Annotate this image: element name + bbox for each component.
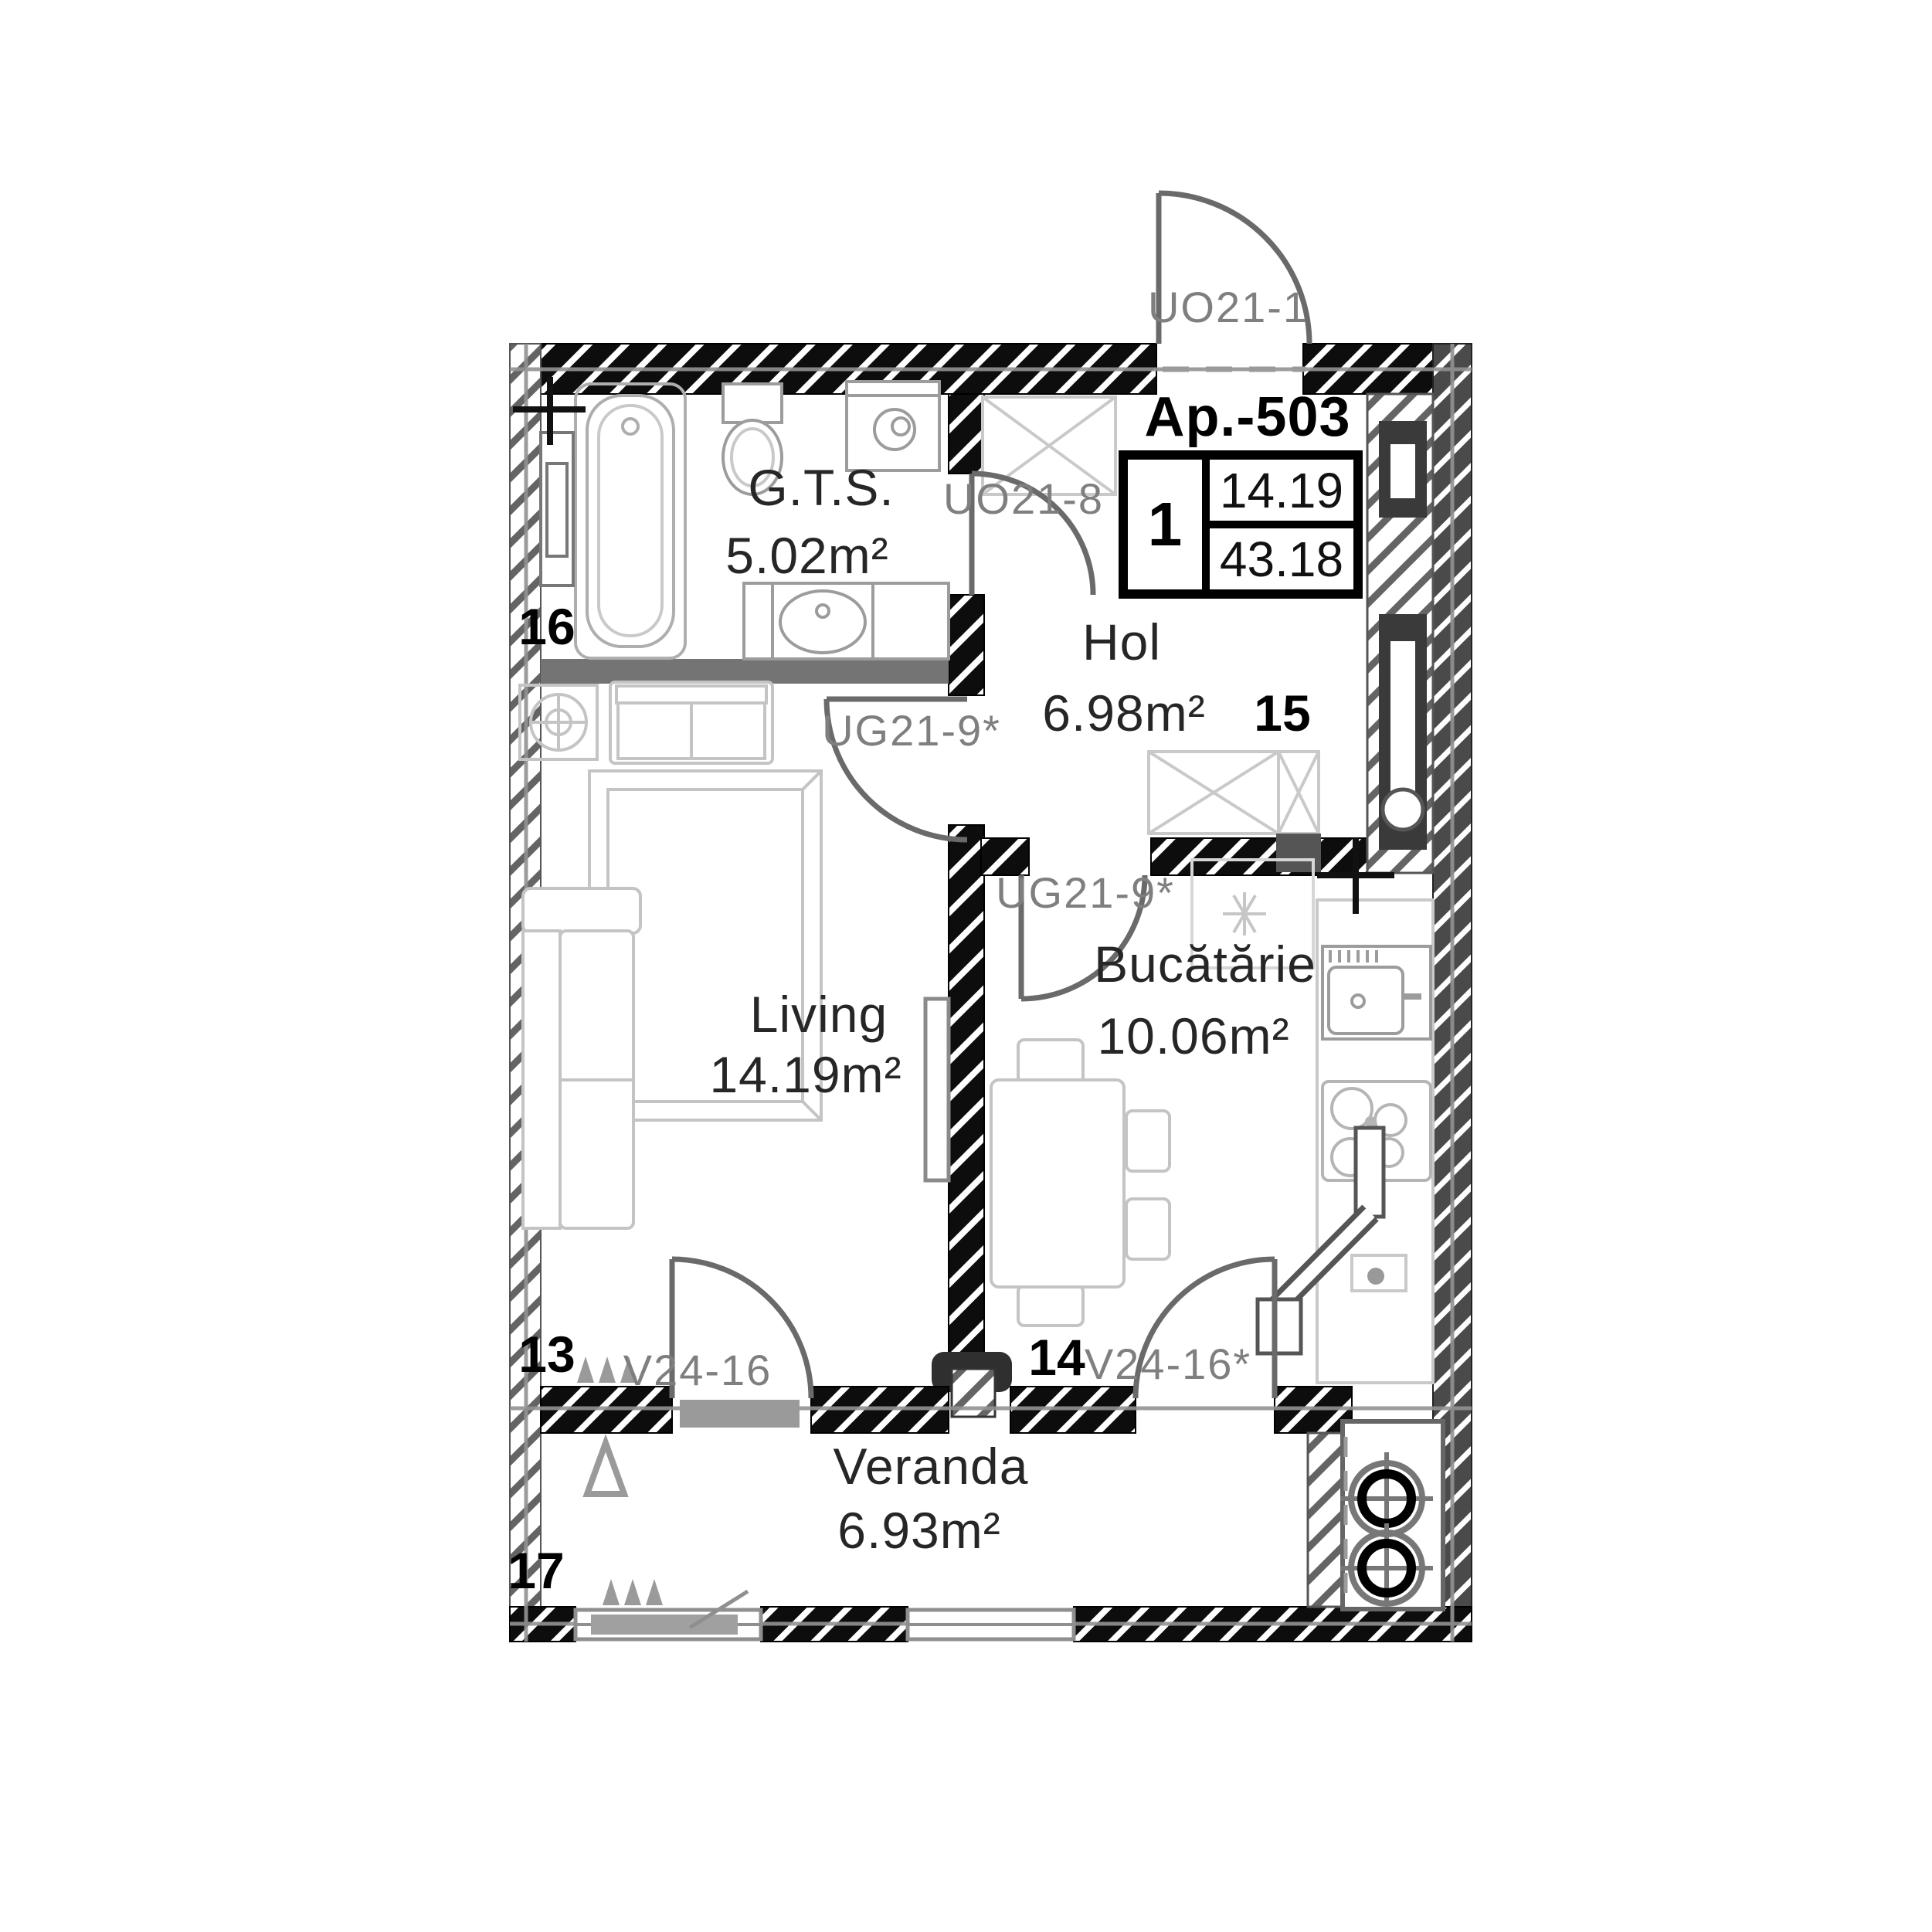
summary-total-area: 43.18 [1210,528,1353,589]
room-area-hol: 6.98m² [1042,688,1205,739]
bathroom-sink-icon [744,583,949,659]
apartment-title: Ap.-503 [1144,389,1350,445]
position-marker-13: 13 [518,1329,575,1380]
tv-icon [925,999,949,1180]
position-marker-15: 15 [1254,688,1310,739]
room-label-hol: Hol [1082,616,1161,667]
room-label-gts: G.T.S. [748,462,894,513]
room-area-gts: 5.02m² [725,530,888,581]
position-marker-14: 14 [1028,1332,1085,1383]
position-marker-16: 16 [518,601,575,652]
door-label-bathroom: UO21-8 [943,477,1104,521]
pipe-shaft [1308,1421,1443,1609]
kitchen-sink-icon [1323,946,1431,1039]
door-label-veranda-kitchen: V24-16* [1085,1343,1251,1386]
door-label-veranda-living: V24-16 [623,1349,772,1392]
summary-rooms-count: 1 [1128,460,1210,589]
room-area-living: 14.19m² [709,1049,901,1100]
position-marker-17: 17 [508,1545,564,1596]
entry-shaft [1367,394,1433,873]
washing-machine-icon [847,382,939,470]
door-label-living: UG21-9* [822,709,1001,752]
bathtub-icon [576,384,685,658]
floor-plan-graphic [0,0,1932,1932]
door-label-entry: UO21-1 [1148,286,1309,329]
room-label-bucatarie: Bucătărie [1094,939,1316,990]
room-label-veranda: Veranda [834,1441,1029,1492]
area-summary-box: 1 14.19 43.18 [1119,450,1363,599]
corner-sofa-icon [523,888,640,1228]
door-label-kitchen: UG21-9* [996,871,1175,915]
summary-room-area: 14.19 [1210,460,1353,528]
floor-plan-page: G.T.S. 5.02m² Hol 6.98m² Living 14.19m² … [0,0,1932,1932]
room-label-living: Living [750,989,888,1040]
room-area-veranda: 6.93m² [837,1505,1000,1556]
dining-table-icon [991,1040,1170,1326]
room-area-bucatarie: 10.06m² [1097,1010,1289,1061]
radiator-icon [541,433,573,586]
sofa-icon [610,682,772,763]
